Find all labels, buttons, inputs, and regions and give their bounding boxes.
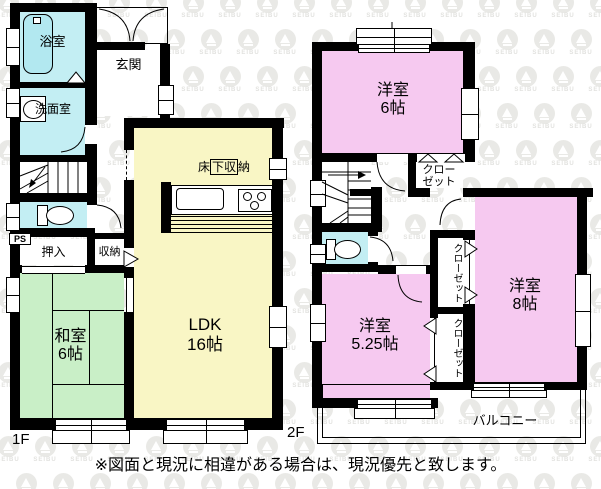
label-washroom: 洗面室 [18,103,88,117]
closet6-fold-door [445,154,463,162]
label-closet525-vertical: クローゼット [439,316,462,380]
label-washitsu: 和室 6帖 [28,328,113,365]
stair2-winder [322,194,348,203]
label-bath: 浴室 [20,35,85,50]
entrance-door-arc-left [99,9,130,41]
label-western6: 洋室 6帖 [350,82,436,119]
label-ps: PS [9,233,31,245]
room6-door-arc [377,162,405,191]
toilet-2f-door-arc [370,237,393,261]
label-underfloor-storage: 床下収納 [192,161,256,175]
closet525-fold-door [424,318,436,334]
floorplan-image: SEIBUSEIBUSEIBUSEIBUSEIBUSEIBUSEIBUSEIBU… [0,0,601,489]
bath-fold-door [67,72,85,83]
label-ldk: LDK 16帖 [160,315,250,354]
disclaimer-note: ※図面と現況に相違がある場合は、現況優先と致します。 [0,457,601,475]
washroom-door-arc [61,127,85,152]
closet525-fold-door [424,366,436,382]
label-western8: 洋室 8帖 [480,278,570,315]
closet8-fold-door [465,241,477,257]
entrance-door-arc-right [133,9,164,41]
room8-door-arc [440,199,461,225]
label-western525: 洋室 5.25帖 [330,318,420,355]
label-genkan: 玄関 [97,58,160,73]
stair2-winder [322,182,348,195]
label-1f: 1F [12,431,42,448]
stair1-winder [20,165,48,176]
room525-door-arc [398,275,422,302]
label-2f: 2F [287,424,315,441]
stair2-winder [340,217,348,223]
storage-fold-door [124,251,138,267]
stair2-winder [330,211,348,223]
stair2-landing-mark [350,189,371,196]
label-closet6: クロー ゼット [414,164,464,188]
closet6-fold-door [419,154,437,162]
label-oshiire: 押入 [20,246,87,260]
closet8-fold-door [465,287,477,303]
toilet-1f-door-arc [97,205,121,228]
label-storage: 収納 [93,246,126,259]
label-closet8-vertical: クローゼット [439,241,462,305]
label-balcony: バルコニー [440,414,570,429]
